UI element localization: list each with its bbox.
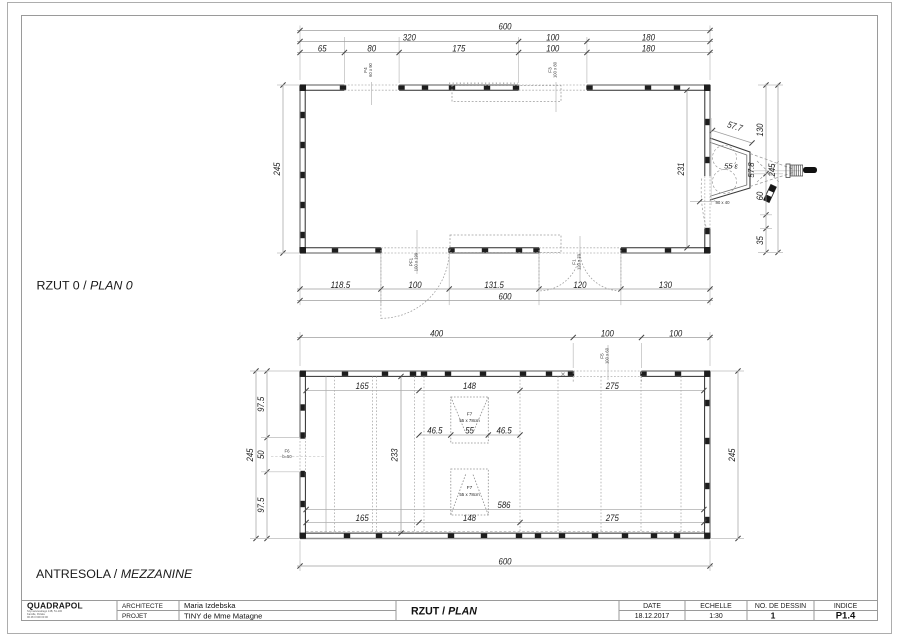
svg-text:55 x 78cm: 55 x 78cm xyxy=(459,492,480,497)
svg-text:245: 245 xyxy=(727,448,737,463)
svg-text:245: 245 xyxy=(272,162,282,177)
svg-text:100 x 80: 100 x 80 xyxy=(553,61,558,78)
svg-text:148: 148 xyxy=(463,381,477,391)
svg-text:00 48 0 600 00 00: 00 48 0 600 00 00 xyxy=(27,615,48,619)
svg-text:NO. DE DESSIN: NO. DE DESSIN xyxy=(755,603,806,610)
svg-text:ARCHITECTE: ARCHITECTE xyxy=(122,603,163,610)
svg-text:RZUT / PLAN: RZUT / PLAN xyxy=(411,605,477,617)
svg-text:50: 50 xyxy=(256,450,266,459)
svg-text:ANTRESOLA / MEZZANINE: ANTRESOLA / MEZZANINE xyxy=(36,567,193,581)
svg-text:1:30: 1:30 xyxy=(709,613,723,620)
svg-text:60 x 90: 60 x 90 xyxy=(368,62,373,76)
svg-text:131.5: 131.5 xyxy=(484,280,504,290)
svg-text:245: 245 xyxy=(767,163,777,178)
svg-text:60: 60 xyxy=(755,191,765,200)
svg-text:97.5: 97.5 xyxy=(256,497,266,513)
svg-text:600: 600 xyxy=(498,21,512,31)
svg-text:F7: F7 xyxy=(467,485,473,491)
svg-text:RZUT 0 / PLAN 0: RZUT 0 / PLAN 0 xyxy=(37,279,133,293)
svg-text:QUADRAPOL: QUADRAPOL xyxy=(27,600,83,610)
svg-text:65: 65 xyxy=(318,43,327,53)
svg-text:233: 233 xyxy=(390,448,400,463)
svg-text:130: 130 xyxy=(659,280,673,290)
svg-text:55 x 78cm: 55 x 78cm xyxy=(459,418,480,423)
svg-text:97.5: 97.5 xyxy=(256,396,266,412)
svg-text:275: 275 xyxy=(605,513,620,523)
svg-text:INDICE: INDICE xyxy=(834,603,858,610)
svg-text:600: 600 xyxy=(498,291,512,301)
svg-text:275: 275 xyxy=(605,381,620,391)
svg-text:175: 175 xyxy=(452,43,466,53)
svg-text:100: 100 xyxy=(601,328,615,338)
svg-text:120: 120 xyxy=(573,280,587,290)
svg-text:46.5: 46.5 xyxy=(427,426,443,436)
svg-text:100: 100 xyxy=(669,328,683,338)
svg-text:120 x 70: 120 x 70 xyxy=(577,253,582,270)
svg-text:55: 55 xyxy=(465,426,474,436)
svg-text:P1.4: P1.4 xyxy=(836,611,856,622)
svg-text:180: 180 xyxy=(642,43,656,53)
svg-text:231: 231 xyxy=(676,162,686,176)
svg-text:165: 165 xyxy=(356,381,370,391)
svg-text:100 x 60: 100 x 60 xyxy=(605,347,610,364)
svg-text:118.5: 118.5 xyxy=(331,280,351,290)
svg-text:46.5: 46.5 xyxy=(497,426,513,436)
svg-text:PROJET: PROJET xyxy=(122,613,147,620)
svg-text:320: 320 xyxy=(403,32,417,42)
svg-text:100: 100 xyxy=(409,280,423,290)
svg-text:DATE: DATE xyxy=(643,603,661,610)
svg-text:600: 600 xyxy=(498,557,512,567)
svg-text:Maria Izdebska: Maria Izdebska xyxy=(184,601,236,610)
svg-text:130: 130 xyxy=(755,123,765,137)
svg-text:57.8: 57.8 xyxy=(747,162,756,178)
svg-text:ECHELLE: ECHELLE xyxy=(700,603,732,610)
svg-text:55 ε: 55 ε xyxy=(724,162,738,171)
svg-text:400: 400 xyxy=(430,328,444,338)
svg-text:245: 245 xyxy=(245,448,255,463)
svg-text:165: 165 xyxy=(356,513,370,523)
svg-text:TINY de Mme Matagne: TINY de Mme Matagne xyxy=(184,611,262,620)
svg-text:1: 1 xyxy=(771,610,776,620)
svg-text:586: 586 xyxy=(497,500,511,510)
svg-text:18.12.2017: 18.12.2017 xyxy=(635,613,670,620)
svg-text:35: 35 xyxy=(755,235,765,244)
svg-text:100: 100 xyxy=(546,43,560,53)
svg-text:180: 180 xyxy=(642,32,656,42)
svg-text:100: 100 xyxy=(546,32,560,42)
svg-text:F6: F6 xyxy=(284,449,290,454)
svg-text:100 x 199: 100 x 199 xyxy=(414,252,419,271)
svg-text:80: 80 xyxy=(367,43,376,53)
svg-text:F7: F7 xyxy=(467,412,473,418)
